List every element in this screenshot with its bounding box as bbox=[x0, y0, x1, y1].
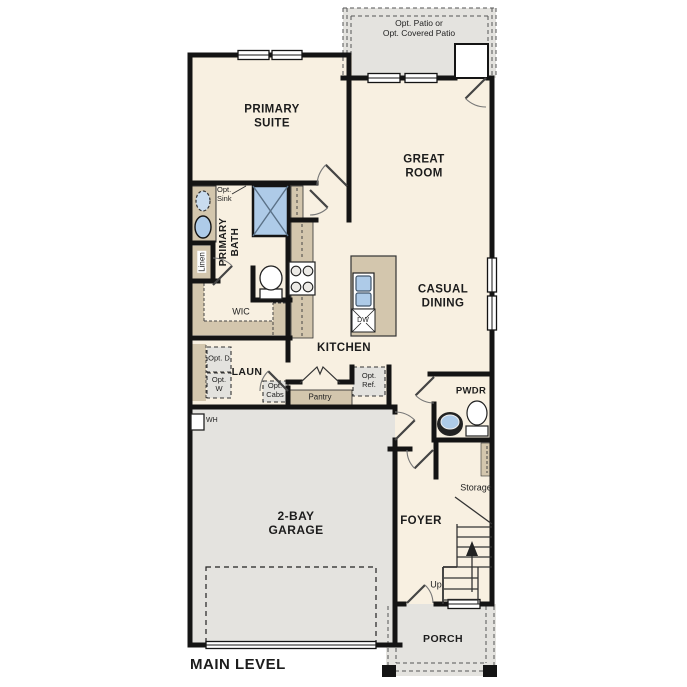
label-water-heater: WH bbox=[206, 417, 218, 425]
laundry-counter bbox=[192, 344, 206, 401]
label-dishwasher: DW bbox=[357, 317, 369, 325]
room-label-laundry: LAUN bbox=[232, 366, 263, 378]
patio-door-frame bbox=[455, 44, 488, 78]
porch-post-left bbox=[382, 665, 396, 677]
label-opt-ref: Opt. Ref. bbox=[357, 372, 381, 390]
pwdr-toilet bbox=[466, 401, 488, 436]
label-pantry: Pantry bbox=[308, 392, 331, 401]
room-label-wic: WIC bbox=[232, 307, 250, 318]
room-label-kitchen: KITCHEN bbox=[317, 342, 371, 356]
label-opt-sink: Opt. Sink bbox=[217, 186, 243, 204]
patio-label-line1: Opt. Patio or bbox=[395, 18, 443, 28]
cooktop bbox=[289, 262, 315, 295]
plan-title: MAIN LEVEL bbox=[190, 656, 286, 674]
label-storage: Storage bbox=[460, 483, 492, 494]
label-opt-cabs: Opt. Cabs bbox=[262, 382, 288, 400]
label-up: Up bbox=[430, 580, 442, 591]
room-label-casual-dining: CASUAL DINING bbox=[412, 283, 474, 310]
pwdr-sink bbox=[437, 412, 463, 436]
label-linen: Linen bbox=[197, 251, 206, 273]
patio-label-line2: Opt. Covered Patio bbox=[383, 28, 455, 38]
bath-toilet bbox=[260, 266, 282, 299]
water-heater bbox=[191, 414, 204, 430]
room-label-foyer: FOYER bbox=[400, 515, 442, 529]
island-sink bbox=[353, 273, 374, 309]
optional-sink bbox=[196, 191, 210, 211]
shower bbox=[253, 186, 288, 236]
floor-plan: Opt. Patio or Opt. Covered Patio PRIMARY… bbox=[0, 0, 687, 687]
label-opt-washer: Opt. W bbox=[208, 376, 230, 394]
room-label-porch: PORCH bbox=[423, 633, 463, 645]
room-label-great-room: GREAT ROOM bbox=[397, 153, 451, 180]
room-label-primary-suite: PRIMARY SUITE bbox=[236, 103, 308, 130]
room-label-garage: 2-BAY GARAGE bbox=[263, 509, 329, 537]
porch-post-right bbox=[483, 665, 497, 677]
label-opt-dryer: Opt. D bbox=[208, 355, 230, 364]
room-label-primary-bath: PRIMARY BATH bbox=[218, 211, 242, 273]
room-label-pwdr: PWDR bbox=[456, 385, 486, 396]
patio-label: Opt. Patio or Opt. Covered Patio bbox=[354, 18, 484, 38]
vanity-sink bbox=[195, 216, 211, 238]
